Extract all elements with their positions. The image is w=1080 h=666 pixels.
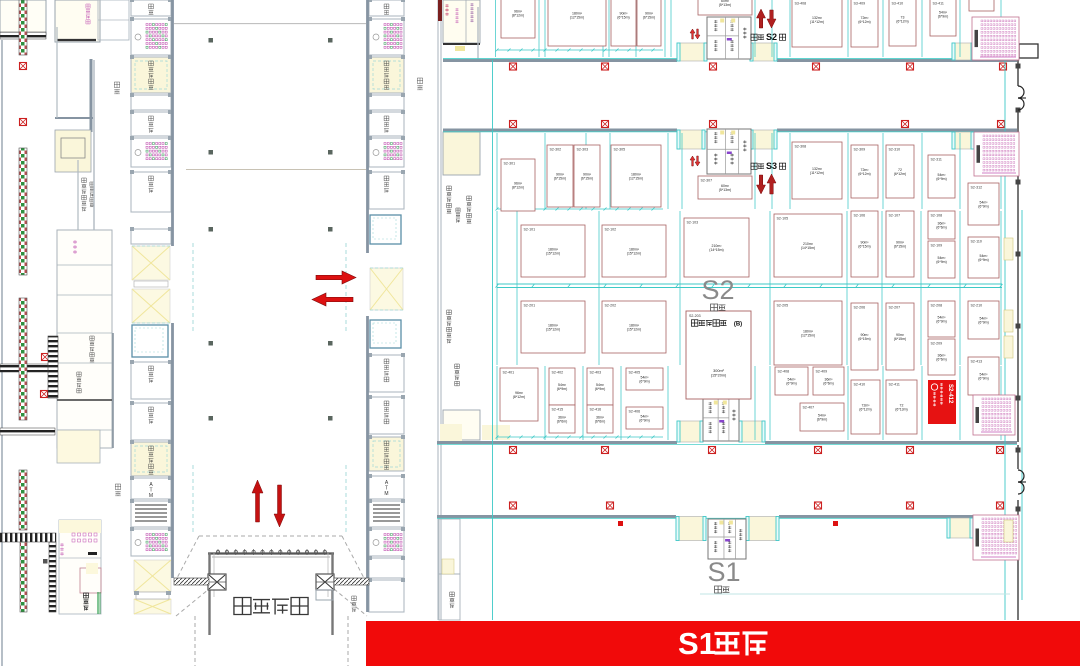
svg-text:(6*15m): (6*15m)	[643, 15, 655, 19]
svg-text:(6*9m): (6*9m)	[978, 376, 989, 380]
svg-text:S3-411: S3-411	[933, 2, 944, 6]
svg-text:(6*15m): (6*15m)	[858, 244, 870, 248]
svg-text:(6*15m): (6*15m)	[894, 337, 906, 341]
svg-text:(15*12m): (15*12m)	[627, 251, 641, 255]
svg-text:(6*9m): (6*9m)	[938, 14, 949, 18]
svg-text:S2-406: S2-406	[629, 410, 641, 414]
svg-text:(14*15m): (14*15m)	[709, 248, 723, 252]
svg-text:S2-102: S2-102	[605, 228, 617, 232]
svg-text:S2-415: S2-415	[552, 408, 564, 412]
svg-text:(5*13m): (5*13m)	[719, 188, 731, 192]
svg-text:(6*12m): (6*12m)	[896, 19, 908, 23]
svg-text:S1: S1	[678, 626, 716, 661]
svg-text:S2-106: S2-106	[854, 214, 866, 218]
svg-text:S3-409: S3-409	[854, 2, 866, 6]
svg-text:S2-413: S2-413	[971, 360, 983, 364]
svg-text:(15*12m): (15*12m)	[627, 327, 641, 331]
svg-text:(6*15m): (6*15m)	[554, 176, 566, 180]
svg-text:(6*9m): (6*9m)	[786, 381, 797, 385]
svg-text:S2-201: S2-201	[524, 304, 536, 308]
svg-text:S2-210: S2-210	[971, 304, 983, 308]
svg-text:S2-302: S2-302	[550, 148, 562, 152]
svg-text:(6*9m): (6*9m)	[595, 387, 606, 391]
svg-text:S2-309: S2-309	[854, 148, 866, 152]
svg-text:S3-410: S3-410	[892, 2, 904, 6]
svg-text:S2-407: S2-407	[803, 406, 815, 410]
svg-text:S1: S1	[707, 557, 740, 587]
svg-text:S2-208: S2-208	[931, 304, 943, 308]
svg-text:(8*12m): (8*12m)	[512, 185, 524, 189]
svg-text:(15*12m): (15*12m)	[546, 251, 560, 255]
svg-text:(6*12m): (6*12m)	[859, 407, 871, 411]
svg-text:(14*15m): (14*15m)	[801, 246, 815, 250]
svg-text:(6*9m): (6*9m)	[936, 260, 947, 264]
svg-text:(6*6m): (6*6m)	[823, 381, 834, 385]
svg-text:(8*12m): (8*12m)	[512, 13, 524, 17]
svg-text:(12*15m): (12*15m)	[801, 333, 815, 337]
svg-text:S2-412: S2-412	[947, 384, 953, 404]
svg-text:(6*6m): (6*6m)	[936, 357, 947, 361]
svg-text:(6*6m): (6*6m)	[595, 419, 606, 423]
svg-text:(6*9m): (6*9m)	[936, 177, 947, 181]
svg-text:(12*15m): (12*15m)	[570, 15, 584, 19]
svg-text:S2-405: S2-405	[629, 371, 641, 375]
svg-text:S2-310: S2-310	[889, 148, 901, 152]
svg-text:(6*15m): (6*15m)	[581, 176, 593, 180]
svg-text:(8*12m): (8*12m)	[513, 395, 525, 399]
svg-text:S2-101: S2-101	[524, 228, 536, 232]
svg-text:S2-305: S2-305	[614, 148, 626, 152]
svg-text:S2-410: S2-410	[854, 383, 866, 387]
svg-text:(6*13m): (6*13m)	[895, 407, 907, 411]
svg-text:(6*9m): (6*9m)	[639, 418, 650, 422]
svg-text:(6*15m): (6*15m)	[858, 337, 870, 341]
svg-text:S2-205: S2-205	[777, 304, 789, 308]
svg-text:S2-110: S2-110	[971, 240, 982, 244]
svg-text:(6*9m): (6*9m)	[978, 258, 989, 262]
svg-text:(15*12m): (15*12m)	[546, 327, 560, 331]
svg-text:(6*6m): (6*6m)	[557, 419, 568, 423]
svg-text:S2-411: S2-411	[889, 383, 900, 387]
svg-text:S2-209: S2-209	[931, 342, 943, 346]
svg-text:S2-416: S2-416	[590, 408, 602, 412]
svg-text:(6*15m): (6*15m)	[894, 244, 906, 248]
svg-text:S2-408: S2-408	[778, 370, 790, 374]
svg-text:S3: S3	[766, 161, 777, 171]
svg-text:(6*12m): (6*12m)	[858, 172, 870, 176]
svg-text:S2-206: S2-206	[854, 306, 866, 310]
svg-text:(11*12m): (11*12m)	[810, 20, 824, 24]
svg-text:M: M	[149, 493, 153, 499]
svg-text:S2-312: S2-312	[971, 186, 983, 190]
svg-text:(6*15m): (6*15m)	[617, 15, 629, 19]
svg-text:S2-308: S2-308	[795, 145, 807, 149]
svg-text:S2-202: S2-202	[605, 304, 617, 308]
svg-text:(6*9m): (6*9m)	[557, 387, 568, 391]
svg-text:S2-203: S2-203	[689, 314, 701, 318]
svg-text:S2-311: S2-311	[931, 158, 942, 162]
svg-text:300m²: 300m²	[713, 369, 724, 373]
svg-text:(B): (B)	[734, 322, 742, 328]
svg-text:S2-402: S2-402	[552, 371, 564, 375]
svg-text:S2-103: S2-103	[687, 221, 699, 225]
svg-text:S2: S2	[701, 275, 734, 305]
svg-text:(5*13m): (5*13m)	[719, 3, 731, 7]
svg-text:(6*12m): (6*12m)	[894, 172, 906, 176]
svg-text:S3-408: S3-408	[795, 2, 807, 6]
svg-text:S2-109: S2-109	[931, 244, 943, 248]
svg-text:(6*9m): (6*9m)	[639, 379, 650, 383]
svg-text:(12*15m): (12*15m)	[629, 176, 643, 180]
svg-text:S2-307: S2-307	[701, 179, 713, 183]
svg-text:(6*9m): (6*9m)	[817, 417, 828, 421]
svg-text:S2-301: S2-301	[504, 162, 516, 166]
svg-text:(6*12m): (6*12m)	[858, 20, 870, 24]
svg-text:(6*9m): (6*9m)	[978, 320, 989, 324]
svg-text:(11*12m): (11*12m)	[810, 171, 824, 175]
svg-text:S2-303: S2-303	[577, 148, 589, 152]
svg-text:S2-403: S2-403	[590, 371, 602, 375]
svg-text:S2-401: S2-401	[503, 371, 515, 375]
svg-text:S2-207: S2-207	[889, 306, 901, 310]
svg-text:S2-107: S2-107	[889, 214, 901, 218]
svg-text:(15*20m): (15*20m)	[711, 373, 727, 377]
svg-text:(6*9m): (6*9m)	[936, 319, 947, 323]
svg-text:S2-108: S2-108	[931, 214, 943, 218]
svg-text:(6*9m): (6*9m)	[978, 204, 989, 208]
svg-text:M: M	[384, 491, 388, 497]
svg-text:S2-409: S2-409	[816, 370, 828, 374]
svg-text:S2: S2	[766, 32, 777, 42]
svg-text:S2-105: S2-105	[777, 217, 789, 221]
svg-text:(6*6m): (6*6m)	[936, 225, 947, 229]
